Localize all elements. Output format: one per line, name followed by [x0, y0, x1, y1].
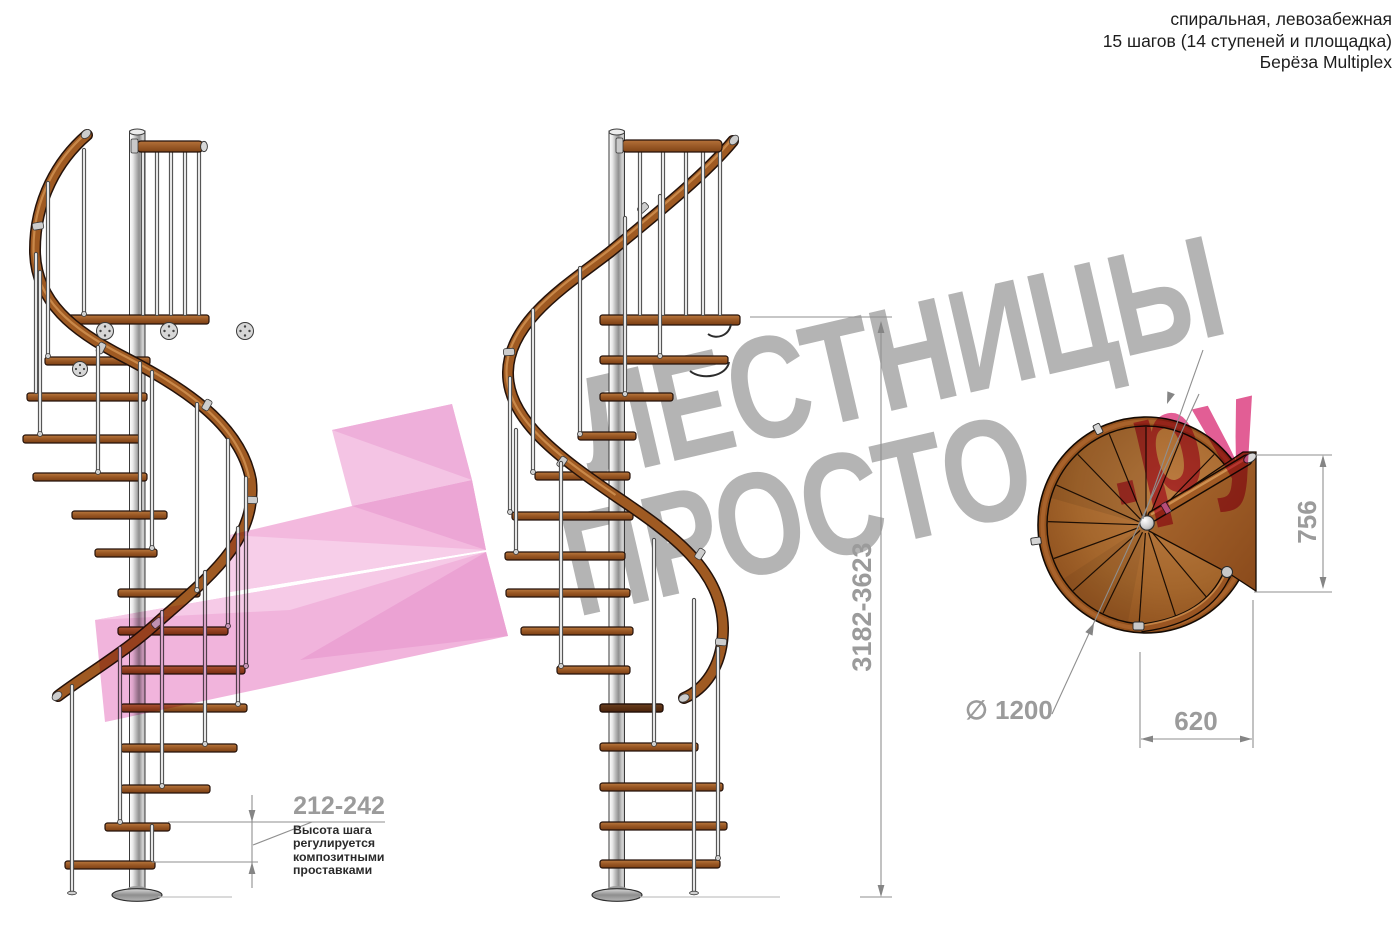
- page: { "header": { "line1": "спиральная, лево…: [0, 0, 1400, 944]
- title-line-steps: 15 шагов (14 ступеней и площадка): [1103, 31, 1392, 53]
- dim-landing-width: 620: [1136, 706, 1256, 736]
- title-line-type: спиральная, левозабежная: [1103, 9, 1392, 31]
- dim-diameter: ∅ 1200: [929, 695, 1089, 725]
- title-block: спиральная, левозабежная 15 шагов (14 ст…: [1103, 9, 1392, 74]
- dim-step-height: 212-242: [259, 792, 419, 820]
- diameter-value: 1200: [995, 695, 1053, 725]
- dim-landing-depth: 756: [1292, 461, 1322, 583]
- dim-diameter-leader: [1052, 350, 1203, 714]
- title-line-material: Берёза Multiplex: [1103, 52, 1392, 74]
- dimension-lines: [0, 0, 1400, 944]
- step-height-note: Высота шага регулируется композитными пр…: [293, 824, 423, 878]
- diameter-icon: ∅: [965, 695, 988, 725]
- dim-total-height: 3182-3623: [846, 507, 878, 707]
